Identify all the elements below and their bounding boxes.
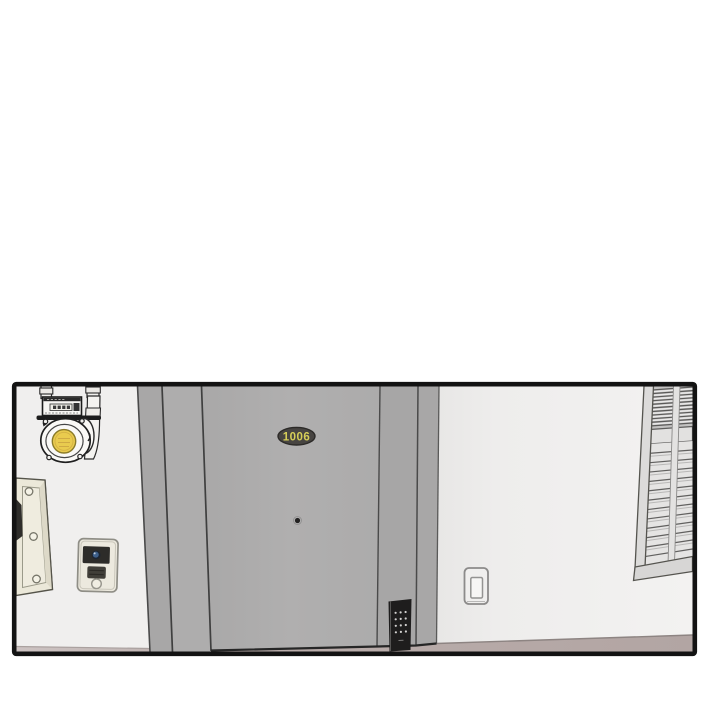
svg-text:1006: 1006 (283, 431, 311, 443)
